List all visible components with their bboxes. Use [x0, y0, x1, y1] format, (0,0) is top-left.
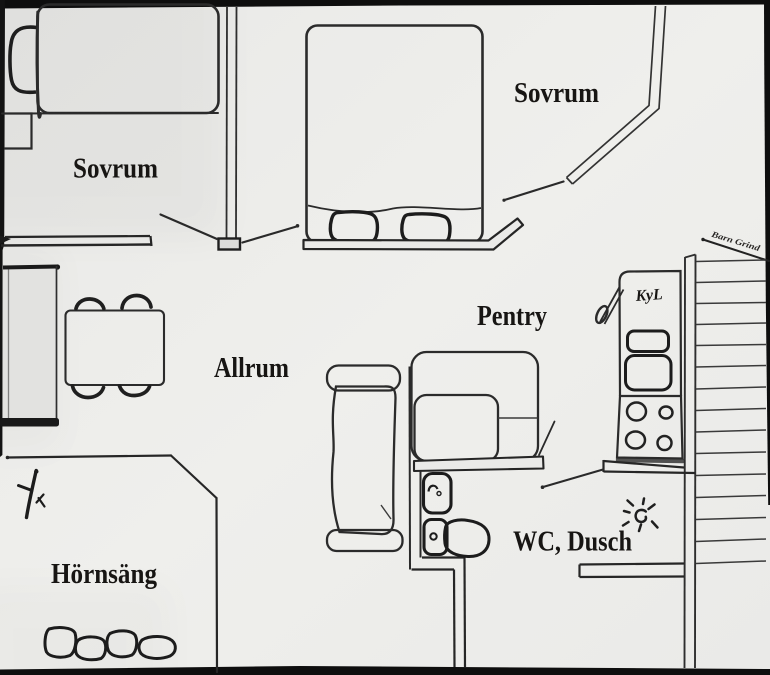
svg-text:KyL: KyL [634, 286, 663, 305]
svg-text:Hörnsäng: Hörnsäng [51, 558, 157, 590]
svg-text:Allrum: Allrum [214, 352, 289, 384]
svg-text:WC, Dusch: WC, Dusch [513, 526, 632, 558]
svg-text:Sovrum: Sovrum [73, 153, 158, 185]
svg-text:Sovrum: Sovrum [514, 77, 599, 109]
svg-text:Pentry: Pentry [477, 300, 547, 332]
